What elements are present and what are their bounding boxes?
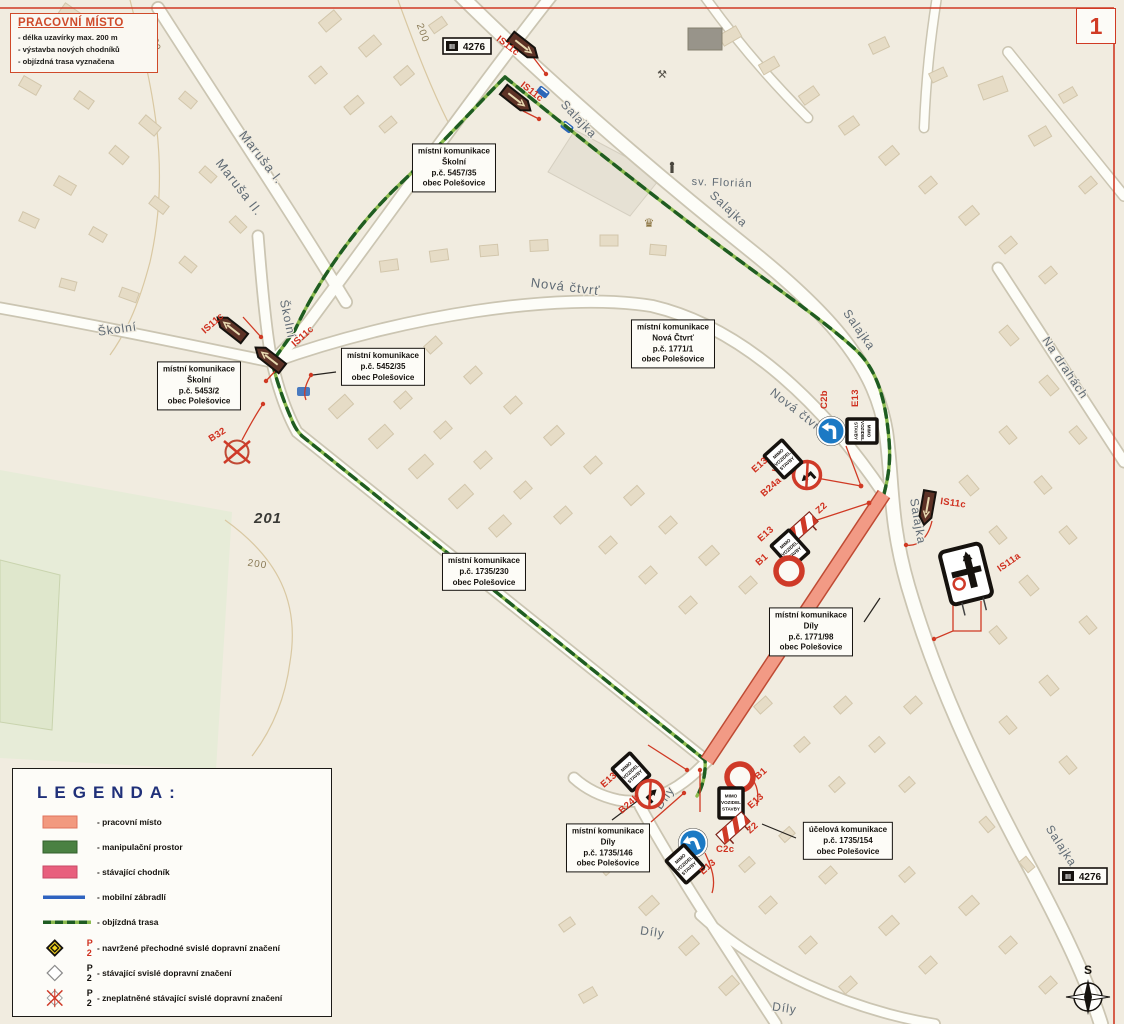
building (1079, 616, 1097, 635)
callout-line: obec Polešovice (448, 577, 520, 588)
worksite-title: PRACOVNÍ MÍSTO (18, 17, 150, 29)
building (544, 425, 565, 445)
sign-code-label: C2b (819, 390, 830, 409)
building (1039, 266, 1058, 284)
building (599, 536, 618, 554)
legend-item-label: - pracovní místo (97, 817, 162, 827)
callout-line: místní komunikace (418, 146, 490, 157)
street-label: Nová čtvrť (530, 275, 601, 298)
building (679, 935, 700, 955)
street-label: Školní (277, 298, 300, 340)
bus-shelter-icon (297, 387, 310, 396)
callout-line: místní komunikace (448, 556, 520, 567)
building (919, 956, 938, 974)
building (904, 696, 923, 714)
building (999, 426, 1017, 445)
building (739, 576, 758, 594)
building (1069, 426, 1087, 445)
building (879, 146, 900, 166)
building (474, 451, 493, 469)
road-callout-box: místní komunikaceDílyp.č. 1735/146obec P… (566, 823, 650, 872)
e13-text-line: VOZIDEL (860, 421, 865, 441)
legend-sign-code: P 2 (87, 988, 97, 1008)
building (959, 206, 980, 226)
building (899, 866, 915, 882)
building (19, 212, 40, 229)
legend-item: P 2- stávající svislé dopravní značení (13, 960, 331, 985)
building (179, 256, 197, 273)
building (624, 485, 645, 505)
building (1039, 976, 1058, 994)
shield-number: 4276 (1079, 872, 1102, 883)
building (679, 596, 698, 614)
sign-code-label: Z2 (814, 500, 830, 516)
callout-line: obec Polešovice (163, 397, 235, 408)
road-callout-box: místní komunikaceNová Čtvrťp.č. 1771/1ob… (631, 319, 715, 368)
leader-lines-black (313, 372, 880, 838)
legend-title: LEGENDA: (37, 783, 331, 803)
sign-code-label: E13 (850, 389, 861, 407)
callout-line: p.č. 1735/146 (572, 848, 644, 859)
building (530, 240, 549, 252)
callout-line: místní komunikace (347, 351, 419, 362)
legend-item: P 2- zneplatněné stávající svislé doprav… (13, 985, 331, 1010)
building (600, 235, 618, 246)
detour-swatch (41, 911, 97, 933)
building (489, 515, 512, 537)
sign-code-label: C2c (716, 844, 734, 855)
callout-line: obec Polešovice (809, 846, 887, 857)
large-building (688, 28, 722, 50)
road-number-shield: III4276 (443, 38, 491, 54)
legend-item-label: - stávající svislé dopravní značení (97, 968, 232, 978)
building (309, 66, 328, 84)
building (368, 424, 393, 448)
legend-item-label: - manipulační prostor (97, 842, 183, 852)
callout-line: Díly (775, 621, 847, 632)
legend-item-label: - stávající chodník (97, 867, 170, 877)
building (394, 66, 415, 86)
building (408, 454, 433, 478)
building (1039, 675, 1059, 696)
traffic-plan-sheet: ♛ ⚒ Maruša I.Maruša II.Školn (0, 0, 1124, 1024)
manipulation-swatch (41, 836, 97, 858)
sign-code-label: E13 (756, 524, 777, 544)
sign-proposed-swatch (41, 937, 84, 959)
building (504, 396, 523, 414)
legend-item: - pracovní místo (13, 809, 331, 834)
shield-number: 4276 (463, 42, 486, 53)
sign-code-label: IS11c (940, 496, 967, 510)
road-callout-box: místní komunikaceŠkolníp.č. 5453/2obec P… (157, 361, 241, 410)
building (999, 716, 1017, 735)
building (879, 915, 900, 935)
building (1059, 526, 1077, 545)
building (59, 278, 77, 291)
street-label: Salajka (1043, 823, 1080, 870)
building (1039, 375, 1059, 396)
e13-text-line: STAVBY (854, 422, 859, 440)
building (1028, 126, 1051, 146)
building (514, 481, 533, 499)
callout-line: místní komunikace (572, 826, 644, 837)
sign-code-label: E13 (746, 791, 767, 811)
street-label: sv. Florián (691, 176, 752, 190)
building (1019, 575, 1039, 596)
callout-line: obec Polešovice (572, 859, 644, 870)
legend-item: - stávající chodník (13, 859, 331, 884)
building (1059, 87, 1078, 104)
building (794, 736, 810, 752)
road-callout-box: místní komunikaceDílyp.č. 1771/98obec Po… (769, 607, 853, 656)
building (429, 16, 448, 33)
monument-icon (670, 162, 674, 173)
legend-item: - mobilní zábradlí (13, 885, 331, 910)
worksite-info-box: PRACOVNÍ MÍSTO - délka uzavírky max. 200… (10, 13, 158, 73)
legend-item-label: - objízdná trasa (97, 917, 158, 927)
road-callout-box: místní komunikacep.č. 5452/35obec Polešo… (341, 348, 425, 386)
road-number-shield: III4276 (1059, 868, 1107, 884)
legend-item-label: - navržené přechodné svislé dopravní zna… (97, 943, 280, 953)
building (19, 76, 42, 96)
building (89, 227, 107, 243)
building (199, 166, 217, 183)
building (579, 987, 598, 1004)
building (149, 196, 169, 215)
sign-existing-swatch (41, 962, 84, 984)
building (999, 236, 1018, 254)
building (959, 475, 979, 496)
building (1079, 176, 1098, 194)
building (109, 145, 129, 164)
building (739, 856, 755, 872)
sign-b1 (776, 558, 802, 584)
building (839, 976, 858, 994)
building (659, 516, 678, 534)
sign-e13: MIMOVOZIDELSTAVBY (847, 419, 877, 443)
street-label: Díly (639, 923, 665, 940)
e13-text-line: MIMO (725, 794, 738, 799)
building (650, 244, 667, 255)
legend-sign-code: P 2 (87, 938, 97, 958)
sheet-number: 1 (1076, 8, 1116, 44)
building (448, 484, 473, 508)
road-callout-box: účelová komunikacep.č. 1735/154obec Pole… (803, 822, 893, 860)
building (639, 566, 658, 584)
worksite-bullet: - výstavba nových chodníků (18, 44, 150, 56)
building (318, 10, 341, 32)
building (899, 776, 915, 792)
building (480, 244, 499, 257)
street-label: 200 (247, 558, 268, 572)
legend-item-label: - mobilní zábradlí (97, 892, 166, 902)
callout-line: Díly (572, 837, 644, 848)
e13-text-line: STAVBY (722, 807, 740, 812)
building (429, 249, 448, 262)
building (989, 626, 1007, 645)
building (999, 936, 1018, 954)
legend: LEGENDA: - pracovní místo- manipulační p… (12, 768, 332, 1017)
callout-line: místní komunikace (163, 364, 235, 375)
callout-line: obec Polešovice (418, 179, 490, 190)
callout-line: p.č. 1735/154 (809, 836, 887, 847)
crown-well-icon: ♛ (644, 216, 655, 230)
map-fields (0, 130, 662, 770)
e13-text-line: MIMO (867, 425, 872, 438)
callout-line: p.č. 5452/35 (347, 362, 419, 373)
road-callout-box: místní komunikaceŠkolníp.č. 5457/35obec … (412, 143, 496, 192)
building (1034, 476, 1052, 495)
callout-line: místní komunikace (775, 610, 847, 621)
sign-code-label: B1 (754, 551, 771, 568)
callout-line: p.č. 1771/98 (775, 632, 847, 643)
building (799, 936, 818, 954)
callout-line: p.č. 5457/35 (418, 168, 490, 179)
compass-north-label: S (1084, 963, 1092, 977)
building (639, 895, 660, 915)
building (379, 116, 397, 133)
building (424, 336, 443, 354)
callout-line: p.č. 1771/1 (637, 344, 709, 355)
callout-line: Nová Čtvrť (637, 333, 709, 344)
callout-line: místní komunikace (637, 322, 709, 333)
callout-line: účelová komunikace (809, 825, 887, 836)
street-label: 201 (253, 510, 282, 527)
building (699, 545, 720, 565)
building (358, 35, 381, 57)
sign-code-label: E13 (698, 857, 719, 877)
building (869, 37, 890, 55)
shield-prefix: III (449, 44, 455, 51)
e13-text-line: VOZIDEL (721, 800, 741, 805)
callout-line: obec Polešovice (637, 355, 709, 366)
building (719, 975, 740, 995)
building (989, 526, 1007, 545)
building (464, 366, 483, 384)
hammers-icon: ⚒ (657, 69, 667, 81)
legend-sign-code: P 2 (87, 963, 97, 983)
building (344, 95, 364, 114)
legend-item: P 2- navržené přechodné svislé dopravní … (13, 935, 331, 960)
barrier-swatch (41, 886, 97, 908)
building (978, 76, 1008, 100)
worksite-swatch (41, 811, 97, 833)
building (139, 115, 161, 136)
building (74, 91, 94, 110)
building (919, 176, 938, 194)
callout-line: Školní (418, 157, 490, 168)
callout-line: Školní (163, 375, 235, 386)
building (1059, 756, 1077, 775)
building (119, 287, 139, 303)
legend-item: - manipulační prostor (13, 834, 331, 859)
building (834, 696, 853, 714)
building (559, 917, 576, 932)
sign-is11a (939, 543, 996, 618)
building (959, 895, 980, 915)
sign-b1 (727, 764, 753, 790)
sign-is11c (918, 490, 936, 526)
shield-prefix: III (1065, 874, 1071, 881)
building (379, 259, 398, 272)
legend-item-label: - zneplatněné stávající svislé dopravní … (97, 993, 282, 1003)
building (229, 216, 247, 234)
building (54, 176, 77, 196)
callout-line: p.č. 5453/2 (163, 386, 235, 397)
building (179, 91, 198, 109)
sign-code-label: B24a (759, 475, 784, 499)
building (328, 394, 353, 418)
building (869, 736, 885, 752)
callout-line: obec Polešovice (775, 643, 847, 654)
sign-c2b (817, 417, 846, 446)
sign-b32 (224, 441, 250, 464)
building (979, 816, 995, 833)
road-callout-box: místní komunikacep.č. 1735/230obec Poleš… (442, 553, 526, 591)
building (819, 866, 838, 884)
building (394, 391, 413, 409)
building (434, 421, 453, 439)
building (554, 506, 573, 524)
legend-item: - objízdná trasa (13, 910, 331, 935)
building (798, 86, 819, 105)
worksite-bullet: - objízdná trasa vyznačena (18, 56, 150, 68)
building (759, 896, 778, 914)
sign-invalid-swatch (41, 987, 84, 1009)
sign-code-label: IS11a (995, 550, 1023, 574)
building (584, 456, 603, 474)
building (829, 776, 845, 792)
building (999, 325, 1019, 346)
sidewalk-swatch (41, 861, 97, 883)
callout-line: p.č. 1735/230 (448, 567, 520, 578)
worksite-bullet: - délka uzavírky max. 200 m (18, 32, 150, 44)
building (838, 116, 859, 135)
callout-line: obec Polešovice (347, 372, 419, 383)
